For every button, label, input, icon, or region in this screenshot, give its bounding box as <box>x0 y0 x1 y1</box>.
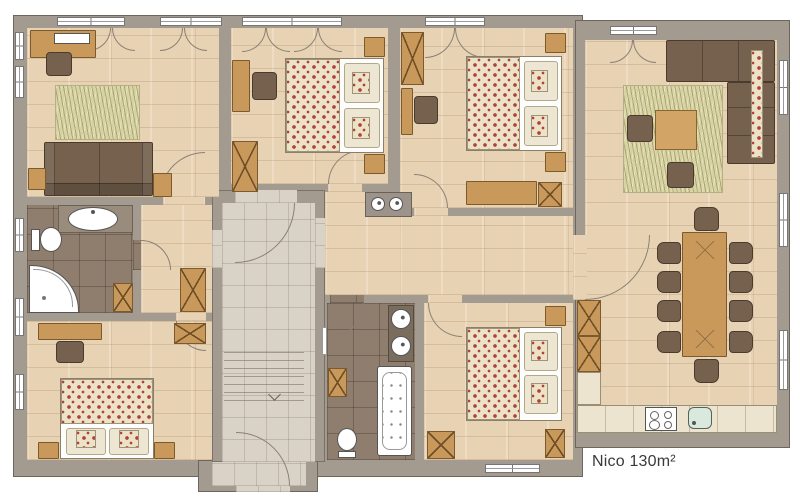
window <box>779 60 788 115</box>
toilet-tank <box>31 229 40 251</box>
bed-cushion <box>531 340 548 361</box>
stove-burner <box>664 411 672 419</box>
stove-burner <box>650 411 659 420</box>
stove-burner <box>664 421 672 429</box>
dining-chair <box>729 331 753 353</box>
dining-chair <box>657 300 681 322</box>
kitchen-sink <box>688 407 712 429</box>
sofa-armrest <box>142 143 152 195</box>
window <box>610 26 657 35</box>
nightstand <box>545 306 566 326</box>
bed-cushion <box>76 430 96 448</box>
window <box>15 66 24 98</box>
dining-chair <box>657 331 681 353</box>
bathroom-cabinet <box>113 283 133 312</box>
nightstand <box>545 33 566 53</box>
table-place-setting <box>691 330 719 348</box>
bed-cushion <box>352 117 370 139</box>
wardrobe <box>180 268 206 312</box>
toilet <box>40 227 62 252</box>
toilet-tank <box>338 451 356 458</box>
sideboard <box>466 181 537 205</box>
kitchen-cabinet <box>577 372 601 405</box>
bed-duvet <box>286 59 340 152</box>
bathtub <box>377 366 412 456</box>
bed-cushion <box>531 70 548 92</box>
bed-duvet <box>467 57 520 150</box>
ottoman <box>627 115 653 142</box>
sofa <box>44 142 153 196</box>
wardrobe <box>538 182 562 207</box>
nightstand <box>154 442 175 459</box>
stove-burner <box>649 420 660 430</box>
wardrobe <box>232 141 258 192</box>
dining-chair <box>657 242 681 264</box>
desk <box>38 323 102 340</box>
dining-chair <box>729 242 753 264</box>
desk-tray <box>54 33 90 44</box>
dining-chair <box>694 359 719 383</box>
door-opening-bathroom-1 <box>133 240 141 270</box>
door-opening-bedroom-2 <box>414 208 448 216</box>
desk-chair <box>56 341 84 363</box>
plan-label: Nico 130m² <box>592 453 676 471</box>
bed-cushion <box>531 115 548 137</box>
staircase <box>224 352 304 408</box>
window <box>242 17 342 26</box>
nightstand <box>364 37 385 57</box>
dining-chair <box>657 271 681 293</box>
opening-hall-nook <box>212 230 222 268</box>
sofa-armrest <box>45 143 55 195</box>
window <box>485 464 540 473</box>
wall-shelf <box>322 327 327 355</box>
door-opening-bedroom-1 <box>328 184 362 192</box>
kitchen-tall-unit <box>577 336 601 372</box>
door-opening-entrance <box>236 486 290 492</box>
dining-chair <box>729 271 753 293</box>
floor-hallway-b <box>400 216 573 295</box>
dining-chair <box>729 300 753 322</box>
coffee-table <box>655 110 697 150</box>
bed-cushion <box>531 383 548 404</box>
desk-chair <box>414 96 438 124</box>
sink <box>391 309 411 329</box>
door-opening-bathroom-2 <box>330 295 364 303</box>
window <box>57 17 125 26</box>
bathroom-cabinet <box>328 368 347 397</box>
window <box>160 17 222 26</box>
shelf <box>401 88 413 135</box>
washer <box>371 197 385 211</box>
kitchen-tall-unit <box>577 300 601 336</box>
window <box>15 298 24 336</box>
wardrobe <box>427 431 455 459</box>
bed-cushion <box>352 72 370 94</box>
window <box>15 218 24 252</box>
side-table <box>153 173 172 197</box>
door-opening-bedroom-3 <box>176 313 206 321</box>
side-table <box>28 168 46 190</box>
bathtub-inner <box>382 372 407 450</box>
nightstand <box>545 152 566 172</box>
wardrobe <box>174 323 206 344</box>
door-opening-study <box>163 197 205 205</box>
floor-plan: Nico 130m² <box>0 0 800 500</box>
window <box>15 32 24 60</box>
desk-chair <box>252 72 277 100</box>
wardrobe <box>545 429 565 458</box>
bed-duvet <box>61 379 153 424</box>
rug <box>55 85 140 140</box>
desk <box>232 60 250 112</box>
toilet <box>337 428 357 451</box>
window <box>425 17 485 26</box>
shower-drain <box>42 296 46 300</box>
faucet-dot <box>91 210 95 214</box>
sink <box>391 336 411 356</box>
desk-chair <box>46 52 72 76</box>
wardrobe <box>401 32 424 85</box>
kitchen-counter <box>577 405 777 433</box>
nightstand <box>364 154 385 174</box>
washer <box>389 197 403 211</box>
dining-chair <box>694 207 719 231</box>
opening-hall-east <box>315 218 325 268</box>
sofa-seat-divider <box>99 143 100 195</box>
window <box>15 374 24 410</box>
bed-duvet <box>467 328 520 420</box>
window <box>779 193 788 247</box>
window <box>779 330 788 390</box>
door-opening-bedroom-4 <box>428 295 462 303</box>
dining-table <box>682 232 727 357</box>
faucet-dot <box>692 421 696 425</box>
table-place-setting <box>691 241 719 259</box>
nightstand <box>38 442 59 459</box>
stove <box>645 407 677 431</box>
ottoman <box>667 162 694 188</box>
sofa-cushion-strip <box>751 50 763 158</box>
bed-cushion <box>119 430 139 448</box>
